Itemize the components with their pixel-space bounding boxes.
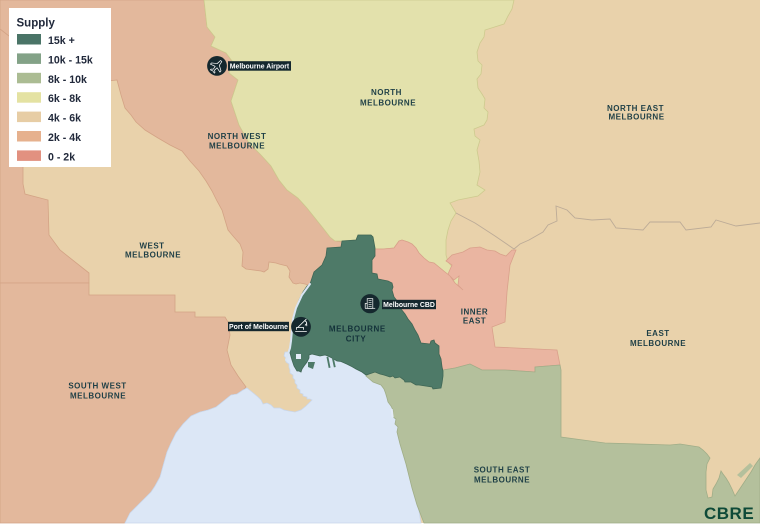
svg-text:SOUTH EAST: SOUTH EAST [474, 465, 531, 474]
svg-text:Melbourne Airport: Melbourne Airport [230, 63, 290, 70]
svg-text:CITY: CITY [346, 335, 367, 344]
svg-text:2k - 4k: 2k - 4k [48, 132, 81, 144]
svg-text:NORTH EAST: NORTH EAST [607, 104, 664, 113]
svg-text:MELBOURNE: MELBOURNE [630, 339, 686, 348]
svg-text:MELBOURNE: MELBOURNE [209, 142, 265, 151]
svg-text:8k - 10k: 8k - 10k [48, 74, 87, 86]
svg-text:Melbourne CBD: Melbourne CBD [383, 302, 435, 309]
svg-text:MELBOURNE: MELBOURNE [608, 113, 664, 122]
svg-text:Supply: Supply [17, 18, 56, 30]
svg-text:MELBOURNE: MELBOURNE [329, 325, 386, 334]
svg-text:EAST: EAST [646, 329, 669, 338]
svg-text:10k - 15k: 10k - 15k [48, 54, 93, 66]
svg-text:MELBOURNE: MELBOURNE [125, 251, 181, 260]
svg-text:INNER: INNER [461, 307, 488, 316]
svg-text:NORTH: NORTH [371, 88, 402, 97]
svg-text:Port of Melbourne: Port of Melbourne [229, 324, 288, 331]
svg-text:4k - 6k: 4k - 6k [48, 113, 81, 125]
svg-text:MELBOURNE: MELBOURNE [70, 391, 126, 400]
svg-text:SOUTH WEST: SOUTH WEST [68, 382, 126, 391]
svg-text:MELBOURNE: MELBOURNE [474, 475, 530, 484]
svg-text:0 - 2k: 0 - 2k [48, 151, 75, 163]
svg-text:EAST: EAST [463, 317, 486, 326]
svg-text:CBRE: CBRE [704, 504, 754, 523]
svg-text:NORTH WEST: NORTH WEST [208, 132, 267, 141]
svg-text:6k - 8k: 6k - 8k [48, 93, 81, 105]
svg-text:WEST: WEST [139, 242, 164, 251]
svg-text:MELBOURNE: MELBOURNE [360, 99, 416, 108]
svg-text:15k +: 15k + [48, 35, 75, 47]
